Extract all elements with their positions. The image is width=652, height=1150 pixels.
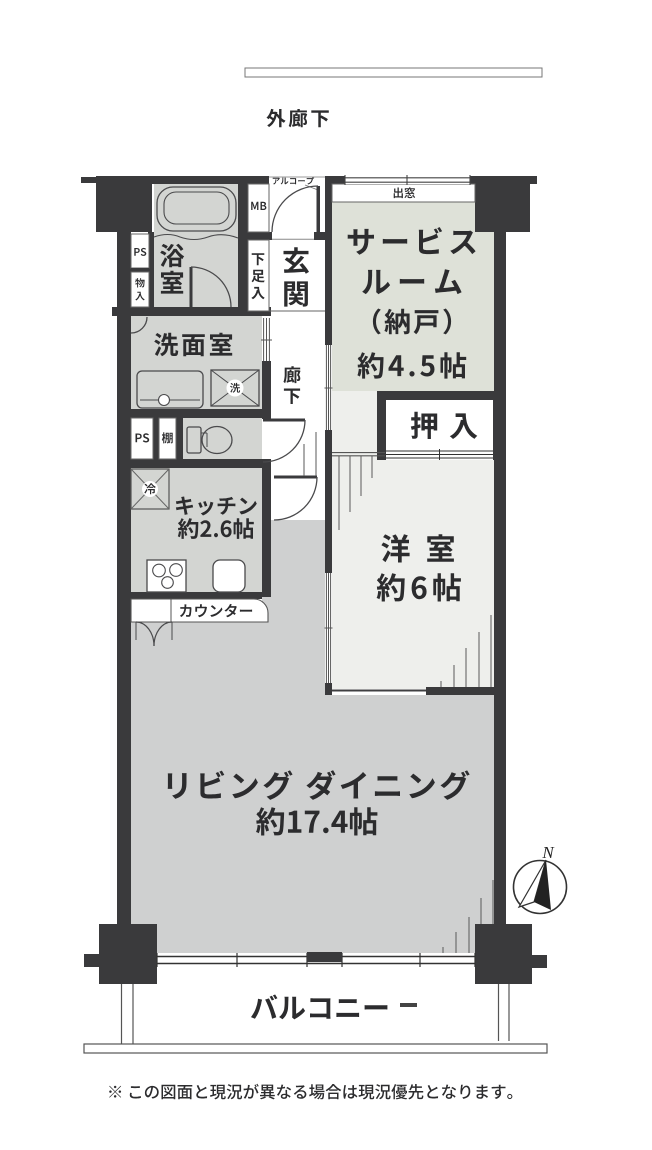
- svg-text:N: N: [541, 843, 555, 862]
